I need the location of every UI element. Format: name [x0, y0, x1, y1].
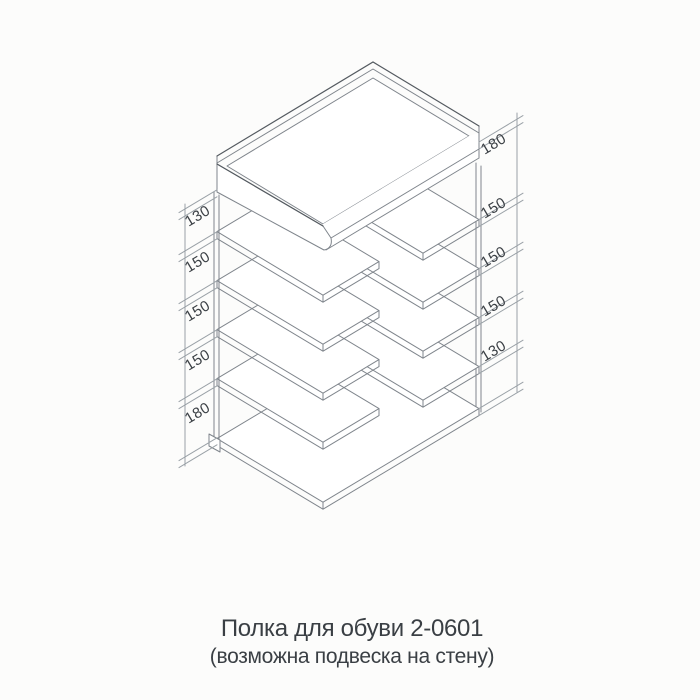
blueprint-page: 130 150 150 150 180 180 150 150 150 130 …	[0, 0, 700, 700]
drawing-title-block: Полка для обуви 2-0601 (возможна подвеск…	[210, 615, 495, 668]
drawing-title: Полка для обуви 2-0601	[221, 615, 483, 642]
drawing-subtitle: (возможна подвеска на стену)	[210, 645, 495, 668]
shoe-shelf-blueprint: 130 150 150 150 180 180 150 150 150 130 …	[0, 0, 700, 700]
